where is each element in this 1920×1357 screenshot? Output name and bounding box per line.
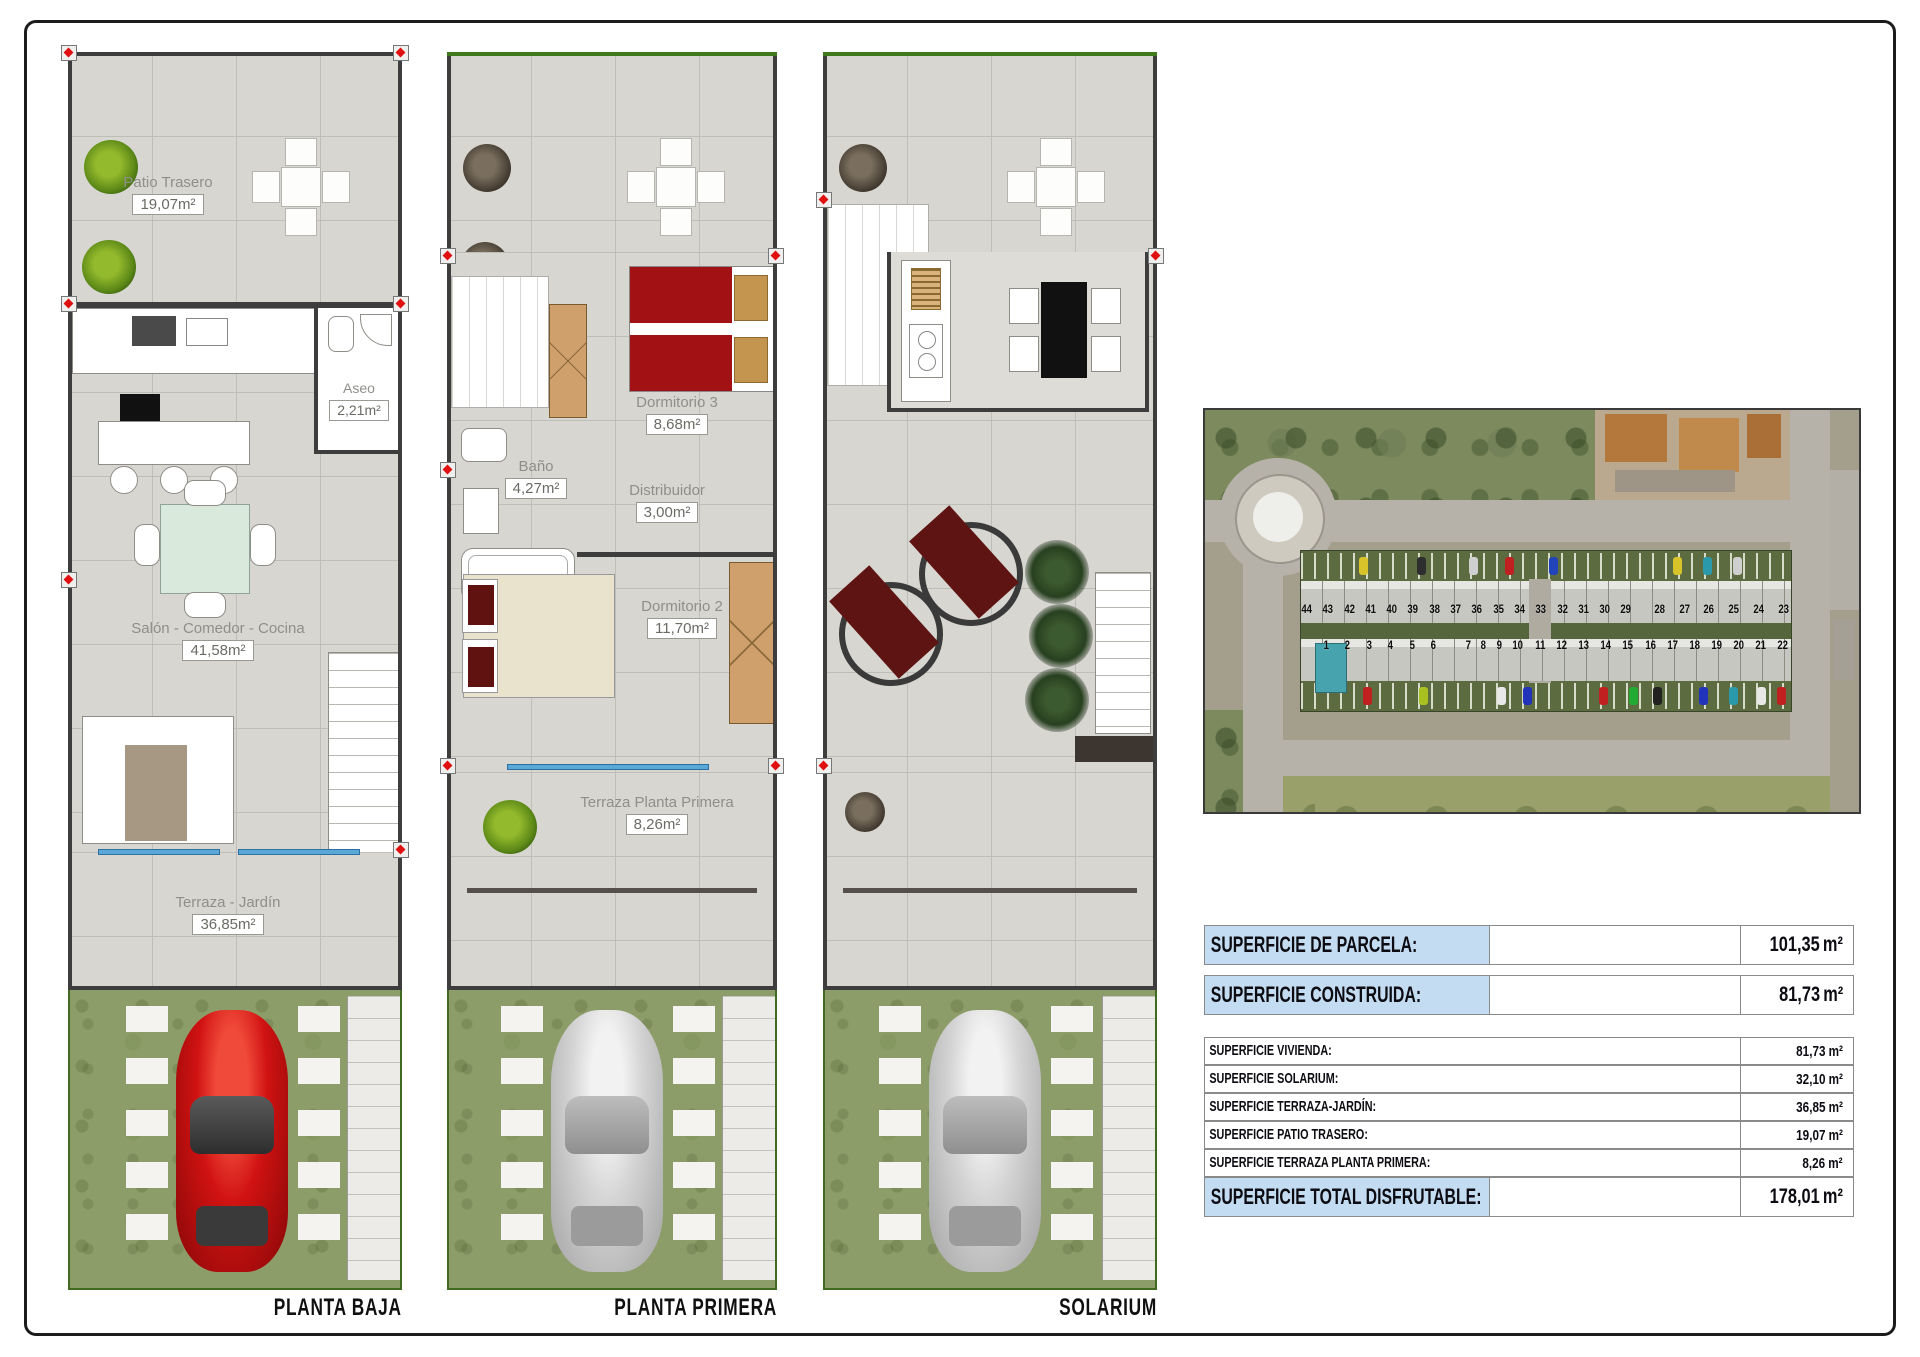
- table-row-vivienda: SUPERFICIE VIVIENDA: 81,73m²: [1204, 1037, 1854, 1065]
- terrace-edge: [467, 888, 757, 893]
- room-label-terraza-planta-primera: Terraza Planta Primera 8,26m²: [547, 794, 767, 835]
- pillow-icon: [468, 647, 494, 687]
- stepping-stones: [879, 1006, 921, 1258]
- washbasin-icon: [461, 428, 507, 462]
- terrace-table: [1003, 134, 1109, 240]
- plant-icon: [82, 240, 136, 294]
- floorplan-planta-baja: Patio Trasero 19,07m² Aseo 2,21m²: [68, 52, 402, 1290]
- wall-marker: [61, 572, 77, 588]
- kitchen-island: [98, 421, 250, 465]
- table-row-patio-trasero: SUPERFICIE PATIO TRASERO: 19,07m²: [1204, 1121, 1854, 1149]
- palm-plant-icon: [1025, 540, 1089, 604]
- wall-marker: [440, 248, 456, 264]
- stairs: [1095, 572, 1151, 734]
- sink-icon: [186, 318, 228, 346]
- wall-marker: [1148, 248, 1164, 264]
- field: [1315, 778, 1830, 812]
- table-row-total-disfrutable: SUPERFICIE TOTAL DISFRUTABLE: 178,01m²: [1204, 1177, 1854, 1217]
- road: [1245, 740, 1830, 778]
- wall-marker: [440, 462, 456, 478]
- unit-numbers-bottom-left: 123456: [1323, 636, 1437, 654]
- dining-table: [160, 504, 250, 594]
- table-row-parcela: SUPERFICIE DE PARCELA: 101,35m²: [1204, 925, 1854, 965]
- toilet-icon: [328, 316, 354, 352]
- room-label-salon: Salón - Comedor - Cocina 41,58m²: [78, 620, 358, 661]
- garden-driveway: [68, 986, 402, 1290]
- palm-plant-icon: [1029, 604, 1093, 668]
- bed-dormitorio-3: [629, 266, 775, 392]
- stepping-stones: [126, 1006, 168, 1258]
- stepping-stones: [1051, 1006, 1093, 1258]
- table-row-solarium: SUPERFICIE SOLARIUM: 32,10m²: [1204, 1065, 1854, 1093]
- parked-cars: [1833, 620, 1855, 680]
- buildings-block: [1830, 470, 1859, 610]
- lower-terrace-area: [823, 772, 1157, 990]
- garden-driveway: [447, 986, 777, 1290]
- grey-car: [551, 1010, 663, 1272]
- palm-plant-icon: [1025, 668, 1089, 732]
- garden-driveway: [823, 986, 1157, 1290]
- bed-duvet: [630, 335, 732, 391]
- stair-void: [451, 276, 549, 408]
- wall-marker: [393, 296, 409, 312]
- scrubland: [1205, 710, 1243, 812]
- plan-title-planta-baja: PLANTA BAJA: [68, 1294, 402, 1324]
- patio-trasero-area: Patio Trasero 19,07m²: [68, 52, 402, 304]
- side-path: [347, 996, 400, 1280]
- wall-marker: [393, 842, 409, 858]
- housing-development: [1300, 550, 1792, 712]
- buildings-block: [1595, 410, 1790, 500]
- wardrobe: [549, 304, 587, 418]
- shrub-icon: [845, 792, 885, 832]
- bed-duvet: [630, 267, 732, 323]
- wall-marker: [61, 45, 77, 61]
- table-row-terraza-jardin: SUPERFICIE TERRAZA-JARDÍN: 36,85m²: [1204, 1093, 1854, 1121]
- pillow-icon: [468, 585, 494, 625]
- room-label-dormitorio-3: Dormitorio 3 8,68m²: [587, 394, 767, 435]
- side-path: [1102, 996, 1155, 1280]
- wall-marker: [768, 758, 784, 774]
- plot-boundary: [823, 52, 1157, 56]
- parking-row: [1301, 683, 1791, 709]
- outdoor-table: [1041, 282, 1087, 378]
- sofa: [82, 716, 234, 844]
- pillow-icon: [734, 275, 768, 321]
- solarium-deck: [823, 252, 1157, 772]
- grey-car: [929, 1010, 1041, 1272]
- pillow-icon: [734, 337, 768, 383]
- chair-icon: [1091, 336, 1121, 372]
- wardrobe: [729, 562, 775, 724]
- summer-kitchen: [887, 252, 1149, 412]
- terraza-jardin-area: Terraza - Jardín 36,85m²: [68, 852, 402, 990]
- unit-numbers-top-right: 282726252423: [1653, 600, 1790, 618]
- interior-wall: [577, 552, 777, 557]
- chair-icon: [184, 480, 226, 506]
- chair-icon: [184, 592, 226, 618]
- wall-marker: [816, 192, 832, 208]
- floorplan-solarium: [823, 52, 1157, 1290]
- plot-boundary: [447, 52, 777, 56]
- wall-marker: [393, 45, 409, 61]
- shrub-icon: [839, 144, 887, 192]
- plant-icon: [483, 800, 537, 854]
- planter-box: [1075, 736, 1157, 762]
- unit-numbers-top-left: 44434241403938373635343332313029: [1300, 600, 1633, 618]
- table-row-terraza-planta-primera: SUPERFICIE TERRAZA PLANTA PRIMERA: 8,26m…: [1204, 1149, 1854, 1177]
- terraza-planta-primera-area: Terraza Planta Primera 8,26m²: [447, 772, 777, 990]
- terrace-table: [623, 134, 729, 240]
- chair-icon: [1009, 336, 1039, 372]
- bed-dormitorio-2: [463, 574, 615, 698]
- parking-row: [1301, 553, 1791, 579]
- stairs: [328, 652, 400, 854]
- plan-title-solarium: SOLARIUM: [823, 1294, 1157, 1324]
- wall-marker: [768, 248, 784, 264]
- wall-marker: [440, 758, 456, 774]
- sliding-door: [238, 849, 360, 855]
- room-label-aseo: Aseo 2,21m²: [304, 380, 414, 421]
- stepping-stones: [298, 1006, 340, 1258]
- unit-numbers-bottom-right: 78910111213141516171819202122: [1465, 636, 1790, 654]
- aseo-room: Aseo 2,21m²: [314, 308, 398, 454]
- shrub-icon: [463, 144, 511, 192]
- sink-icon: [909, 324, 943, 378]
- room-label-terraza-jardin: Terraza - Jardín 36,85m²: [128, 894, 328, 935]
- chair-icon: [1009, 288, 1039, 324]
- patio-table: [248, 134, 354, 240]
- side-path: [722, 996, 775, 1280]
- vent-icon: [911, 268, 941, 310]
- wall-marker: [61, 296, 77, 312]
- stepping-stones: [501, 1006, 543, 1258]
- shower-icon: [360, 314, 392, 346]
- stove-icon: [132, 316, 176, 346]
- stool-icon: [110, 466, 138, 494]
- room-label-patio-trasero: Patio Trasero 19,07m²: [88, 174, 248, 215]
- first-floor-rooms: Dormitorio 3 8,68m² Baño 4,27m² Distribu…: [447, 252, 777, 772]
- surface-summary-table: SUPERFICIE DE PARCELA: 101,35m² SUPERFIC…: [1204, 925, 1854, 1217]
- plan-title-planta-primera: PLANTA PRIMERA: [447, 1294, 777, 1324]
- chair-icon: [1091, 288, 1121, 324]
- room-label-distribuidor: Distribuidor 3,00m²: [587, 482, 747, 523]
- wall-marker: [816, 758, 832, 774]
- chair-icon: [134, 524, 160, 566]
- aerial-site-photo: 44434241403938373635343332313029 2827262…: [1203, 408, 1861, 814]
- red-car: [176, 1010, 288, 1272]
- sliding-door: [98, 849, 220, 855]
- salon-comedor-cocina-area: Aseo 2,21m² Salón - Comedor - Cocina 41,…: [68, 308, 402, 852]
- sofa-cushion: [125, 745, 187, 841]
- stepping-stones: [673, 1006, 715, 1258]
- table-row-construida: SUPERFICIE CONSTRUIDA: 81,73m²: [1204, 975, 1854, 1015]
- chair-icon: [250, 524, 276, 566]
- floorplan-planta-primera: Dormitorio 3 8,68m² Baño 4,27m² Distribu…: [447, 52, 777, 1290]
- terrace-edge: [843, 888, 1137, 893]
- room-label-bano: Baño 4,27m²: [471, 458, 601, 499]
- plan-sheet-page: Patio Trasero 19,07m² Aseo 2,21m²: [0, 0, 1920, 1357]
- terrace-window: [507, 764, 709, 770]
